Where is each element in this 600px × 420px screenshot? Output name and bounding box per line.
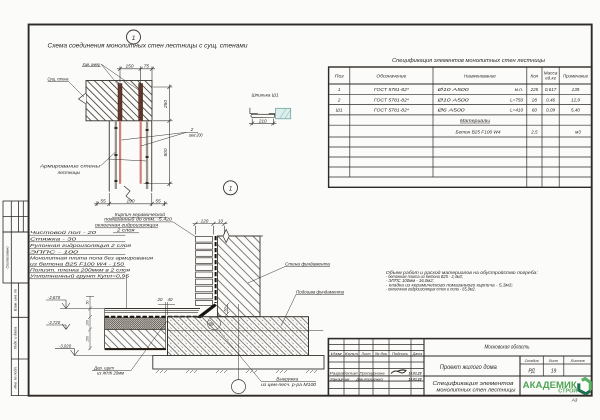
svg-text:Подпись: Подпись bbox=[392, 352, 408, 356]
svg-text:-3,020: -3,020 bbox=[59, 344, 72, 349]
svg-text:210: 210 bbox=[258, 118, 267, 124]
svg-text:225: 225 bbox=[530, 87, 539, 92]
svg-text:Проект жилого дома: Проект жилого дома bbox=[440, 365, 498, 371]
svg-text:16.01.23: 16.01.23 bbox=[409, 377, 422, 381]
svg-text:0,09: 0,09 bbox=[546, 108, 555, 113]
svg-text:100: 100 bbox=[86, 320, 90, 326]
svg-text:500: 500 bbox=[163, 148, 169, 156]
svg-text:из цем-песч. р-ра М100: из цем-песч. р-ра М100 bbox=[261, 382, 316, 387]
svg-text:Монолитная плита пола без арми: Монолитная плита пола без армирования bbox=[30, 255, 154, 260]
svg-text:Листов: Листов bbox=[570, 359, 585, 363]
svg-text:Спецификация элементов монолит: Спецификация элементов монолитных стен л… bbox=[392, 58, 545, 64]
svg-text:Взам. инв. №: Взам. инв. № bbox=[14, 289, 18, 311]
svg-text:ГОСТ 5781-82*: ГОСТ 5781-82* bbox=[374, 87, 409, 92]
svg-text:- оклеечная гидроизоляция стен: - оклеечная гидроизоляция стен и пола - … bbox=[386, 287, 476, 292]
svg-text:м.п.: м.п. bbox=[515, 87, 523, 92]
svg-text:150: 150 bbox=[86, 336, 90, 342]
svg-text:Проскурнина: Проскурнина bbox=[360, 372, 385, 376]
svg-text:75: 75 bbox=[144, 64, 150, 70]
svg-text:120: 120 bbox=[201, 219, 209, 224]
svg-text:Сущ. стена: Сущ. стена bbox=[48, 77, 69, 83]
svg-text:1: 1 bbox=[338, 87, 341, 92]
svg-text:ед.кг: ед.кг bbox=[545, 76, 556, 81]
svg-text:Уплотненный грунт Купл=0,95: Уплотненный грунт Купл=0,95 bbox=[30, 274, 130, 279]
svg-text:L=410: L=410 bbox=[510, 108, 523, 113]
svg-text:Наименование: Наименование bbox=[464, 74, 496, 79]
svg-text:монолитных стен лестницы: монолитных стен лестницы bbox=[437, 387, 516, 393]
svg-text:19: 19 bbox=[551, 369, 557, 375]
svg-text:ГОСТ 5781-82*: ГОСТ 5781-82* bbox=[374, 97, 409, 102]
svg-text:Лист: Лист bbox=[548, 359, 558, 363]
svg-text:2,5: 2,5 bbox=[530, 130, 538, 135]
svg-text:из бетона В25 F100 W4 - 150: из бетона В25 F100 W4 - 150 bbox=[30, 261, 125, 266]
svg-text:Стадия: Стадия bbox=[525, 359, 539, 363]
svg-text:0,46: 0,46 bbox=[546, 97, 555, 102]
svg-text:0,617: 0,617 bbox=[545, 87, 557, 92]
svg-text:Рулонная гидроизоляция 2 слоя: Рулонная гидроизоляция 2 слоя bbox=[30, 243, 132, 248]
svg-text:190: 190 bbox=[126, 199, 134, 205]
svg-text:Подп. и дата: Подп. и дата bbox=[14, 327, 18, 350]
svg-text:А3: А3 bbox=[571, 397, 578, 402]
svg-text:150: 150 bbox=[125, 64, 133, 70]
svg-text:Полиэт. пленка 200мкм в 2 слоя: Полиэт. пленка 200мкм в 2 слоя bbox=[30, 268, 131, 273]
svg-text:Согласовано: Согласовано bbox=[6, 247, 10, 269]
svg-text:10: 10 bbox=[218, 219, 224, 224]
svg-text:Спецификация элементов: Спецификация элементов bbox=[433, 381, 514, 387]
svg-text:Разработал: Разработал bbox=[330, 372, 359, 376]
svg-text:из ЖНК 20мм: из ЖНК 20мм bbox=[97, 371, 124, 376]
svg-text:Шпилька Ш1: Шпилька Ш1 bbox=[251, 93, 279, 98]
svg-text:5,40: 5,40 bbox=[571, 108, 580, 113]
svg-text:2: 2 bbox=[337, 97, 341, 102]
svg-text:-2,720: -2,720 bbox=[48, 320, 61, 325]
svg-text:Выкружка: Выкружка bbox=[276, 376, 298, 381]
svg-text:Заказчик: Заказчик bbox=[330, 377, 350, 381]
svg-text:250: 250 bbox=[163, 100, 169, 109]
svg-text:-2,670: -2,670 bbox=[48, 295, 61, 300]
svg-text:139: 139 bbox=[572, 87, 580, 92]
svg-text:Ш1: Ш1 bbox=[336, 108, 343, 113]
svg-text:55: 55 bbox=[155, 199, 161, 205]
svg-text:Бетон В25 F100 W4: Бетон В25 F100 W4 bbox=[456, 130, 501, 135]
svg-text:Примечание: Примечание bbox=[563, 74, 588, 79]
svg-text:1: 1 bbox=[132, 35, 136, 42]
svg-text:лестницы: лестницы bbox=[57, 171, 81, 176]
svg-text:Обозначение: Обозначение bbox=[376, 74, 406, 79]
svg-text:Ø10 А500: Ø10 А500 bbox=[436, 87, 469, 92]
svg-text:СТРОЙ: СТРОЙ bbox=[558, 387, 577, 395]
svg-text:шаг 200: шаг 200 bbox=[189, 133, 203, 139]
svg-text:50: 50 bbox=[86, 301, 90, 305]
svg-text:40: 40 bbox=[168, 297, 173, 302]
svg-text:Схема соединения монолитных ст: Схема соединения монолитных стен лестниц… bbox=[48, 44, 249, 50]
svg-text:1: 1 bbox=[229, 186, 233, 193]
svg-text:55: 55 bbox=[100, 199, 106, 205]
svg-text:Хим. анкер: Хим. анкер bbox=[82, 62, 100, 68]
svg-text:16.01.23: 16.01.23 bbox=[409, 372, 422, 376]
svg-text:Изм: Изм bbox=[331, 352, 343, 356]
svg-text:ЭППС - 100: ЭППС - 100 bbox=[30, 249, 79, 254]
svg-text:Московская область: Московская область bbox=[485, 345, 530, 351]
svg-text:Материалы: Материалы bbox=[460, 118, 491, 123]
svg-text:Дата: Дата bbox=[412, 352, 422, 356]
svg-text:20: 20 bbox=[157, 297, 163, 302]
svg-text:Дмитриенко: Дмитриенко bbox=[355, 377, 383, 381]
svg-text:12,9: 12,9 bbox=[571, 97, 580, 102]
svg-text:Чистовой пол - 20: Чистовой пол - 20 bbox=[30, 230, 97, 235]
svg-text:Лист: Лист bbox=[361, 352, 371, 356]
svg-text:Ø10 А500: Ø10 А500 bbox=[436, 97, 469, 102]
svg-text:м3: м3 bbox=[575, 130, 581, 135]
svg-text:Армирование стены: Армирование стены bbox=[39, 164, 101, 170]
svg-text:Поз: Поз bbox=[335, 74, 345, 79]
svg-text:Инв. № подл.: Инв. № подл. bbox=[14, 366, 18, 388]
svg-text:ГОСТ 5781-82*: ГОСТ 5781-82* bbox=[374, 108, 409, 113]
svg-text:№ док: № док bbox=[375, 352, 387, 356]
svg-text:Ø6 А500: Ø6 А500 bbox=[436, 108, 465, 113]
svg-text:РД: РД bbox=[528, 369, 535, 375]
svg-text:28: 28 bbox=[531, 97, 538, 102]
svg-text:L=750: L=750 bbox=[510, 97, 523, 102]
svg-text:60: 60 bbox=[532, 108, 538, 113]
svg-text:Колич: Колич bbox=[345, 352, 358, 356]
svg-text:Стяжка - 30: Стяжка - 30 bbox=[30, 237, 77, 242]
svg-text:Кол: Кол bbox=[531, 74, 539, 79]
svg-text:60: 60 bbox=[223, 308, 227, 312]
